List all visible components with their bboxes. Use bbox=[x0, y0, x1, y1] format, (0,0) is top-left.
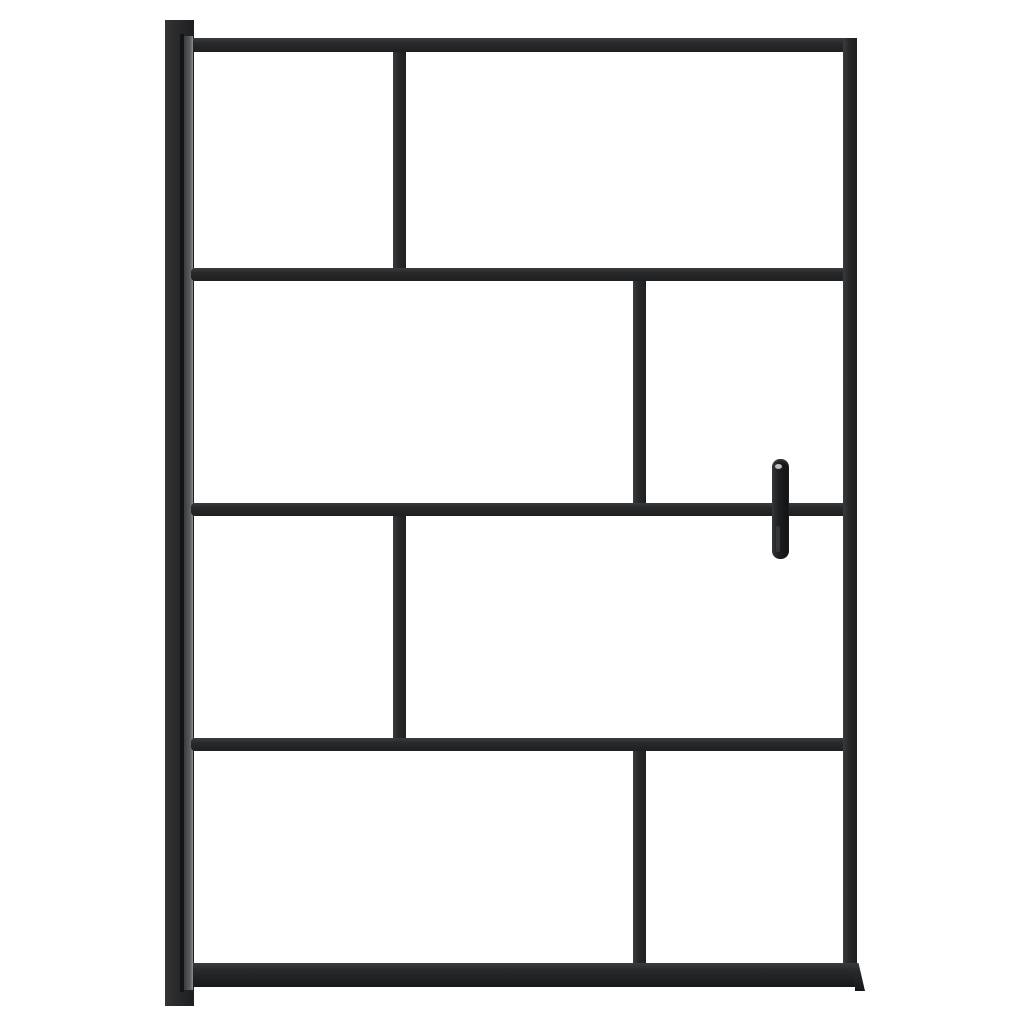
glass-divider-h2 bbox=[191, 503, 843, 516]
frame-bottom-rail bbox=[193, 963, 858, 987]
glass-divider-h3 bbox=[191, 738, 843, 751]
glass-panel-r2-left bbox=[194, 281, 633, 503]
bottom-rail-flare bbox=[855, 963, 865, 991]
frame-right-stile bbox=[843, 38, 857, 987]
glass-divider-v2 bbox=[633, 281, 646, 503]
glass-divider-v4 bbox=[633, 751, 646, 963]
glass-divider-v3 bbox=[393, 516, 406, 738]
glass-divider-h1 bbox=[191, 268, 843, 281]
glass-panel-r2-right bbox=[646, 281, 843, 503]
glass-panel-r4-left bbox=[194, 751, 633, 963]
glass-panel-r1-left bbox=[194, 52, 393, 268]
product-photo-shower-screen bbox=[0, 0, 1024, 1024]
door-handle bbox=[772, 459, 789, 559]
frame-top-rail bbox=[193, 38, 857, 52]
glass-panel-r3-left bbox=[194, 516, 393, 738]
glass-divider-v1 bbox=[393, 52, 406, 268]
glass-panel-r4-right bbox=[646, 751, 843, 963]
handle-sheen bbox=[776, 526, 780, 552]
handle-highlight bbox=[775, 464, 782, 469]
glass-panel-r1-right bbox=[406, 52, 843, 268]
